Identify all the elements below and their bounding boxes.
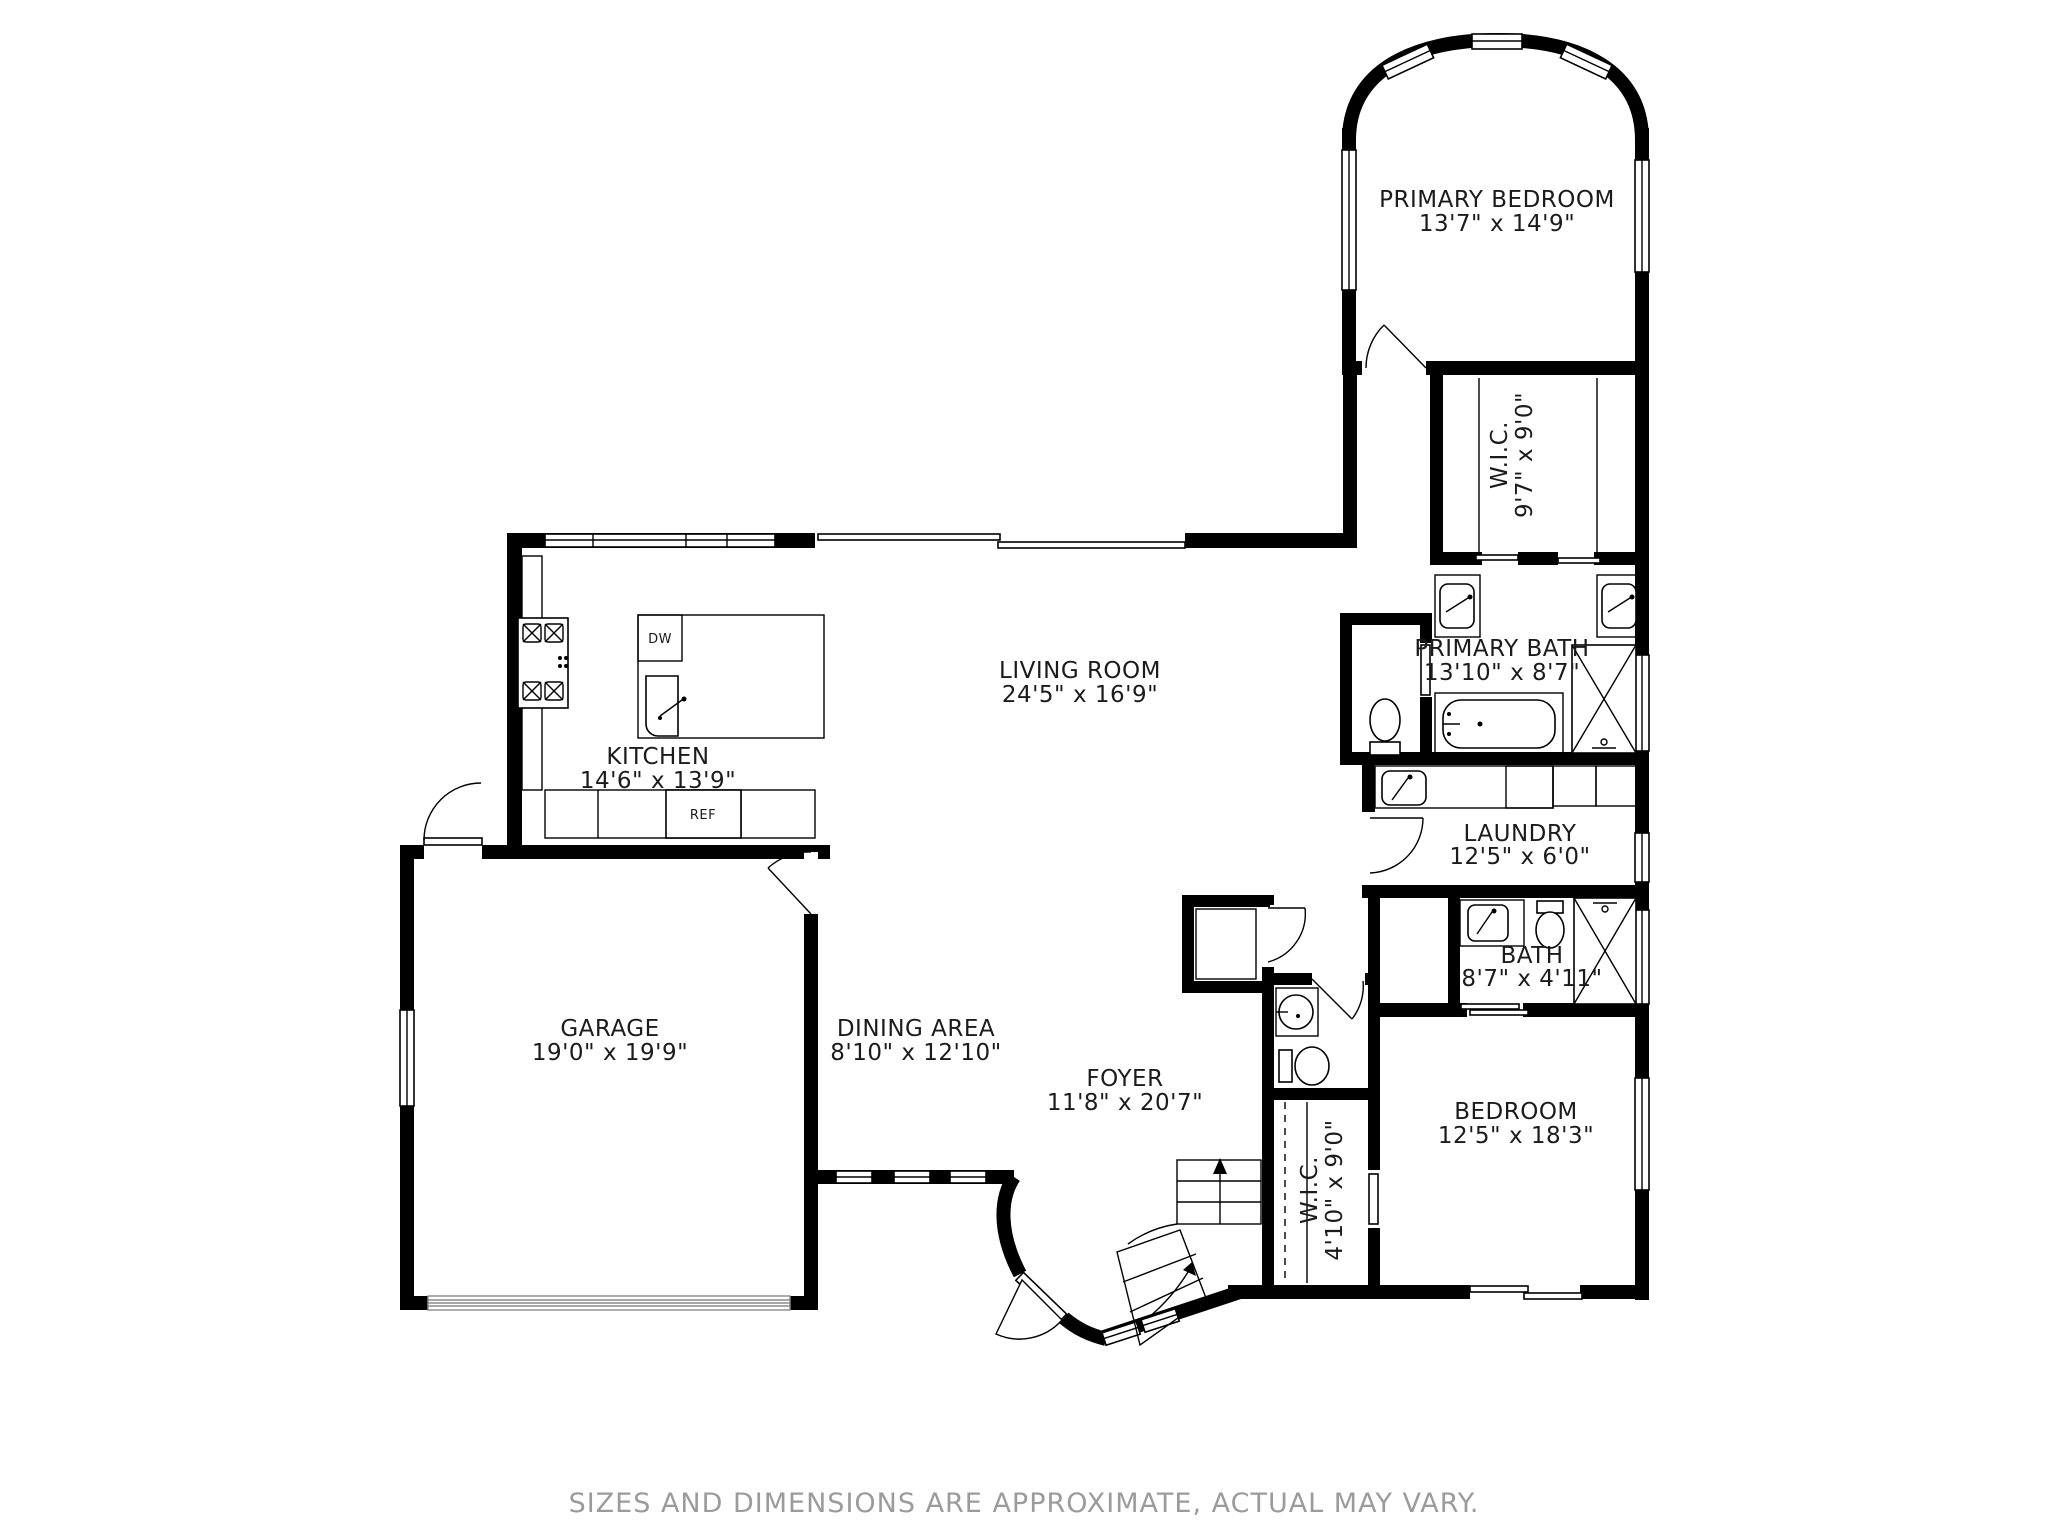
room-label-dining-area: DINING AREA [837, 1016, 995, 1042]
powder-door-icon [1312, 979, 1363, 1019]
laundry-counter [1375, 766, 1639, 808]
front-entry-door-icon [996, 1272, 1067, 1339]
bath-window-icon [1635, 910, 1649, 1004]
primary-bedroom-window-left-icon [1342, 150, 1356, 290]
dining-windows-icon [836, 1171, 986, 1183]
closet-shelf [1196, 909, 1256, 979]
room-dims-dining-area: 8'10" x 12'10" [830, 1040, 1001, 1066]
powder-toilet-icon [1279, 1047, 1329, 1085]
room-label-bedroom: BEDROOM [1454, 1099, 1578, 1125]
primary-toilet-icon [1370, 699, 1400, 755]
primary-bath-window-icon [1635, 655, 1649, 751]
room-dims-primary-bedroom: 13'7" x 14'9" [1419, 211, 1575, 237]
primary-bedroom-window-right-icon [1635, 160, 1649, 272]
room-label-primary-bath: PRIMARY BATH [1414, 636, 1589, 662]
room-label-foyer: FOYER [1086, 1066, 1163, 1092]
room-dims-bath: 8'7" x 4'11" [1461, 966, 1602, 992]
room-dims-laundry: 12'5" x 6'0" [1449, 844, 1590, 870]
refrigerator-label: REF [690, 808, 716, 823]
laundry-window-icon [1635, 833, 1649, 882]
room-dims-living-room: 24'5" x 16'9" [1002, 682, 1158, 708]
room-dims-garage: 19'0" x 19'9" [532, 1040, 688, 1066]
living-room-sliding-door-icon [815, 533, 1185, 548]
bath-vanity [1460, 900, 1524, 946]
room-label-garage: GARAGE [560, 1016, 659, 1042]
floor-plan-page: DW REF [0, 0, 2048, 1536]
room-dims-wic-primary: 9'7" x 9'0" [1512, 392, 1538, 518]
bath-slider-icon [1461, 1004, 1528, 1015]
kitchen-island: DW [638, 615, 824, 738]
laundry-door-icon [1370, 818, 1423, 873]
refrigerator-icon: REF [666, 790, 741, 838]
staircase [1117, 1158, 1261, 1345]
room-dims-wic-bedroom: 4'10" x 9'0" [1322, 1119, 1348, 1260]
garage-door-icon [428, 1296, 790, 1310]
arch-window-top-icon [1472, 34, 1522, 49]
bathtub-icon [1435, 693, 1563, 755]
floor-plan-svg: DW REF [0, 0, 2048, 1536]
room-label-wic-primary: W.I.C. [1487, 421, 1513, 489]
disclaimer-text: SIZES AND DIMENSIONS ARE APPROXIMATE, AC… [569, 1488, 1480, 1519]
room-dims-primary-bath: 13'10" x 8'7" [1424, 660, 1580, 686]
room-dims-foyer: 11'8" x 20'7" [1047, 1090, 1203, 1116]
bedroom-wic-door-icon [1369, 1174, 1378, 1224]
room-dims-bedroom: 12'5" x 18'3" [1438, 1123, 1594, 1149]
primary-bedroom-door-icon [1362, 325, 1426, 375]
room-dims-kitchen: 14'6" x 13'9" [580, 768, 736, 794]
room-label-kitchen: KITCHEN [606, 744, 709, 770]
room-label-wic-bedroom: W.I.C. [1297, 1156, 1323, 1224]
bedroom-slider-icon [1470, 1286, 1582, 1299]
dishwasher-label: DW [648, 632, 672, 647]
garage-window-icon [400, 1010, 414, 1106]
closet-door-icon [1268, 908, 1305, 962]
powder-sink-icon [1276, 988, 1318, 1036]
exterior-door-icon [424, 783, 482, 859]
garage-entry-door-icon [768, 852, 818, 914]
room-label-living-room: LIVING ROOM [999, 658, 1161, 684]
room-label-primary-bedroom: PRIMARY BEDROOM [1379, 187, 1615, 213]
bedroom-window-icon [1635, 1078, 1649, 1190]
primary-bath-vanity-left [1435, 575, 1480, 637]
stove-icon [518, 618, 568, 708]
bath-toilet-icon [1536, 901, 1564, 948]
kitchen-window-icon [545, 534, 775, 547]
